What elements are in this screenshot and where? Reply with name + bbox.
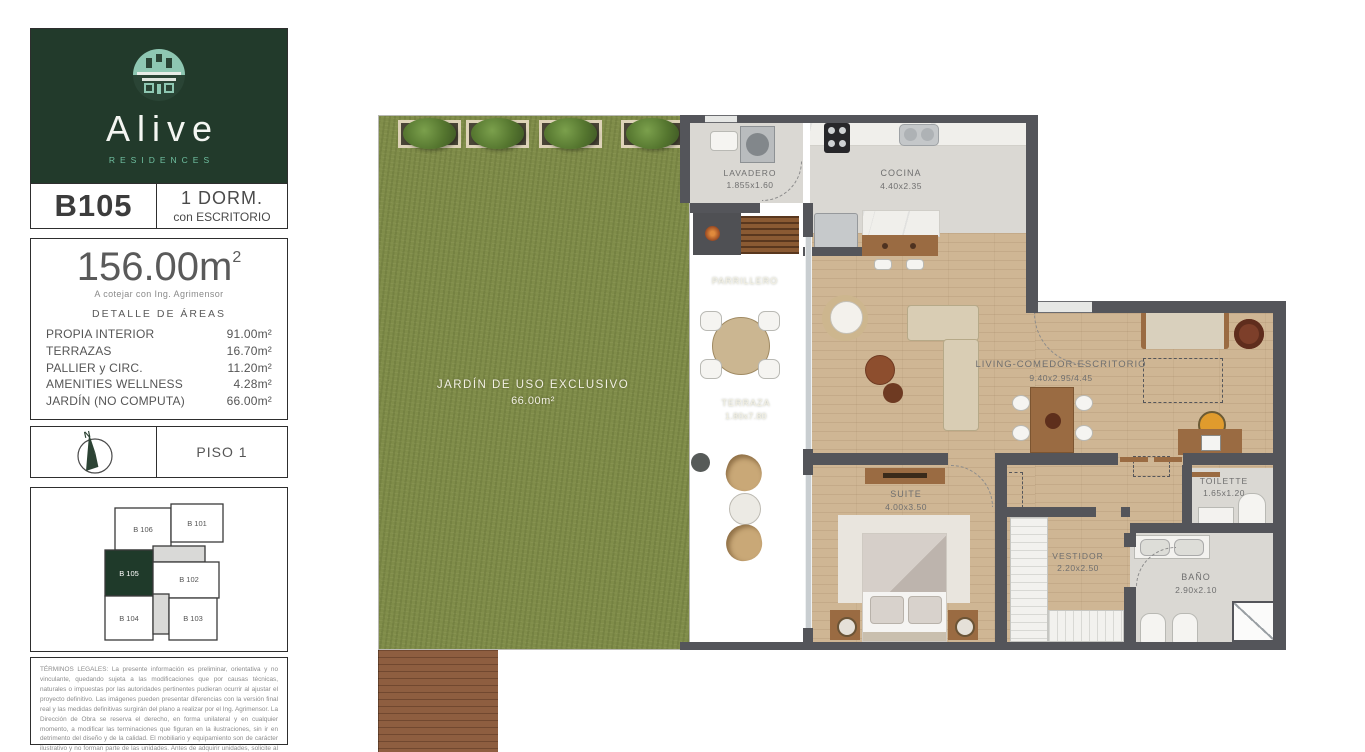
unit-header: B105 1 DORM. con ESCRITORIO xyxy=(30,183,288,229)
floor-label: PISO 1 xyxy=(157,427,287,477)
wardrobe-low xyxy=(1048,610,1124,642)
outdoor-chair xyxy=(758,311,780,331)
areas-panel: 156.00m2 A cotejar con Ing. Agrimensor D… xyxy=(30,238,288,420)
wall-kitchen-east xyxy=(1026,115,1038,313)
stove-icon xyxy=(824,123,850,153)
pouf xyxy=(691,453,710,472)
shower-icon xyxy=(1232,601,1276,642)
area-row: PROPIA INTERIOR91.00m² xyxy=(31,326,287,343)
svg-text:B 103: B 103 xyxy=(183,614,203,623)
compass-icon: N xyxy=(71,429,117,475)
floor-row: N PISO 1 xyxy=(30,426,288,478)
room-label-toilette: TOILETTE1.65x1.20 xyxy=(1200,475,1248,500)
suite-window xyxy=(805,473,812,630)
kitchen-sink-icon xyxy=(899,124,939,146)
bar-stool xyxy=(874,259,892,270)
room-label-terraza: TERRAZA1.80x7.80 xyxy=(721,397,770,422)
compass-cell: N xyxy=(31,427,157,477)
wall-west-seg1 xyxy=(803,203,813,237)
fridge-icon xyxy=(814,213,858,249)
bed-duvet xyxy=(863,534,946,592)
coffee-table xyxy=(865,355,895,385)
wall-west-seg3 xyxy=(803,628,813,646)
room-label-vestidor: VESTIDOR2.20x2.50 xyxy=(1052,550,1103,575)
wall-hall-north-a xyxy=(995,453,1118,465)
dining-chair xyxy=(1075,425,1093,441)
room-label-lavadero: LAVADERO1.855x1.60 xyxy=(723,167,776,192)
laundry-window xyxy=(705,115,737,123)
wall-bath-north xyxy=(1130,523,1273,533)
wall-west-laundry xyxy=(680,115,690,203)
areas-detail-title: DETALLE DE ÁREAS xyxy=(31,308,287,320)
shrub xyxy=(403,118,455,149)
armchair xyxy=(830,301,863,334)
dining-chair xyxy=(1075,395,1093,411)
area-row: PALLIER y CIRC.11.20m² xyxy=(31,360,287,377)
terrace-deck xyxy=(378,650,498,752)
shrub xyxy=(471,118,523,149)
svg-text:B 101: B 101 xyxy=(187,519,207,528)
wall-east xyxy=(1273,301,1286,650)
entry-opening xyxy=(1038,301,1092,313)
grill-icon xyxy=(693,213,741,255)
outdoor-chair xyxy=(700,359,722,379)
wall-hall-north-b xyxy=(1183,453,1273,465)
bidet-icon xyxy=(1172,613,1198,645)
hall-slider-door xyxy=(1120,457,1148,462)
keyplan-panel: B 106 B 101 B 105 B 102 B 104 B 103 xyxy=(30,487,288,652)
planter-box xyxy=(398,120,461,148)
room-label-jardin: JARDÍN DE USO EXCLUSIVO66.00m² xyxy=(437,377,629,410)
sofa-chaise xyxy=(943,339,979,431)
lounge-chair xyxy=(721,450,766,495)
brand-subtitle: RESIDENCES xyxy=(104,155,214,165)
outdoor-chair xyxy=(700,311,722,331)
wardrobe xyxy=(1010,517,1048,642)
bed-pillow xyxy=(908,596,942,624)
dining-table xyxy=(1030,387,1074,453)
floor-plan: JARDÍN DE USO EXCLUSIVO66.00m² LAVADERO1… xyxy=(378,115,1290,650)
brand-logo-panel: Alive RESIDENCES xyxy=(30,28,288,184)
nightstand xyxy=(830,610,860,640)
keyplan-diagram: B 106 B 101 B 105 B 102 B 104 B 103 xyxy=(69,494,249,646)
wall-south xyxy=(680,642,1286,650)
hall-slider-door xyxy=(1154,457,1182,462)
wall-toilette-west xyxy=(1182,465,1192,527)
brand-emblem-icon xyxy=(132,48,186,102)
total-area: 156.00m2 xyxy=(31,247,287,287)
legal-terms-text: TÉRMINOS LEGALES: La presente informació… xyxy=(40,665,278,752)
room-label-bano: BAÑO2.90x2.10 xyxy=(1175,571,1217,596)
svg-text:B 105: B 105 xyxy=(119,569,139,578)
wall-vestidor-north-b xyxy=(1121,507,1130,517)
unit-code: B105 xyxy=(31,184,157,228)
room-label-living: LIVING-COMEDOR-ESCRITORIO9.40x2.95/4.45 xyxy=(975,358,1146,384)
bed-pillow xyxy=(870,596,904,624)
svg-text:B 102: B 102 xyxy=(179,575,199,584)
wall-living-north xyxy=(1092,301,1273,313)
wall-bath-west-a xyxy=(1124,533,1136,547)
svg-text:B 104: B 104 xyxy=(119,614,139,623)
brochure-page: Alive RESIDENCES B105 1 DORM. con ESCRIT… xyxy=(0,0,1365,752)
toilet-icon xyxy=(1140,613,1166,645)
planter-box xyxy=(621,120,684,148)
room-label-parrillero: PARRILLERO xyxy=(712,275,778,288)
coffee-table-small xyxy=(883,383,903,403)
unit-type: 1 DORM. con ESCRITORIO xyxy=(157,184,287,228)
kitchen-island xyxy=(862,210,940,237)
svg-text:N: N xyxy=(82,429,90,440)
wall-laundry-deck xyxy=(690,203,760,213)
unit-type-line1: 1 DORM. xyxy=(181,188,263,209)
room-label-suite: SUITE4.00x3.50 xyxy=(885,488,927,513)
svg-text:B 106: B 106 xyxy=(133,525,153,534)
lounge-chair xyxy=(723,522,766,565)
sofa xyxy=(907,305,979,341)
nightstand xyxy=(948,610,978,640)
island-front xyxy=(862,235,938,256)
unit-type-line2: con ESCRITORIO xyxy=(173,210,270,224)
shrub xyxy=(544,118,596,149)
areas-list: PROPIA INTERIOR91.00m² TERRAZAS16.70m² P… xyxy=(31,326,287,410)
area-row: TERRAZAS16.70m² xyxy=(31,343,287,360)
wall-bath-west-b xyxy=(1124,587,1136,642)
planter-box xyxy=(539,120,602,148)
grill-grate xyxy=(741,216,799,254)
area-row: JARDÍN (NO COMPUTA)66.00m² xyxy=(31,393,287,410)
bar-stool xyxy=(906,259,924,270)
living-window xyxy=(805,233,812,451)
round-chair xyxy=(1234,319,1264,349)
laundry-sink-icon xyxy=(710,131,738,151)
tv-console xyxy=(865,468,945,484)
room-label-cocina: COCINA4.40x2.35 xyxy=(880,167,922,192)
dining-chair xyxy=(1012,425,1030,441)
total-area-note: A cotejar con Ing. Agrimensor xyxy=(31,289,287,299)
bed-headboard xyxy=(863,632,946,641)
shrub xyxy=(626,118,678,149)
area-row: AMENITIES WELLNESS4.28m² xyxy=(31,376,287,393)
dashed-zone-living xyxy=(1143,358,1223,403)
desk xyxy=(1178,429,1242,455)
brand-name: Alive xyxy=(99,108,219,150)
outdoor-chair xyxy=(758,359,780,379)
legal-panel: TÉRMINOS LEGALES: La presente informació… xyxy=(30,657,288,745)
wall-suite-north xyxy=(803,453,948,465)
planter-box xyxy=(466,120,529,148)
loveseat xyxy=(1141,311,1229,349)
bed xyxy=(862,533,947,642)
wall-vestidor-north-a xyxy=(1007,507,1096,517)
side-table xyxy=(729,493,761,525)
kitchen-wall-stub xyxy=(803,247,869,256)
washing-machine-icon xyxy=(740,126,775,163)
dining-chair xyxy=(1012,395,1030,411)
wall-entry-jamb xyxy=(1026,301,1038,313)
wall-suite-vestidor xyxy=(995,465,1007,650)
